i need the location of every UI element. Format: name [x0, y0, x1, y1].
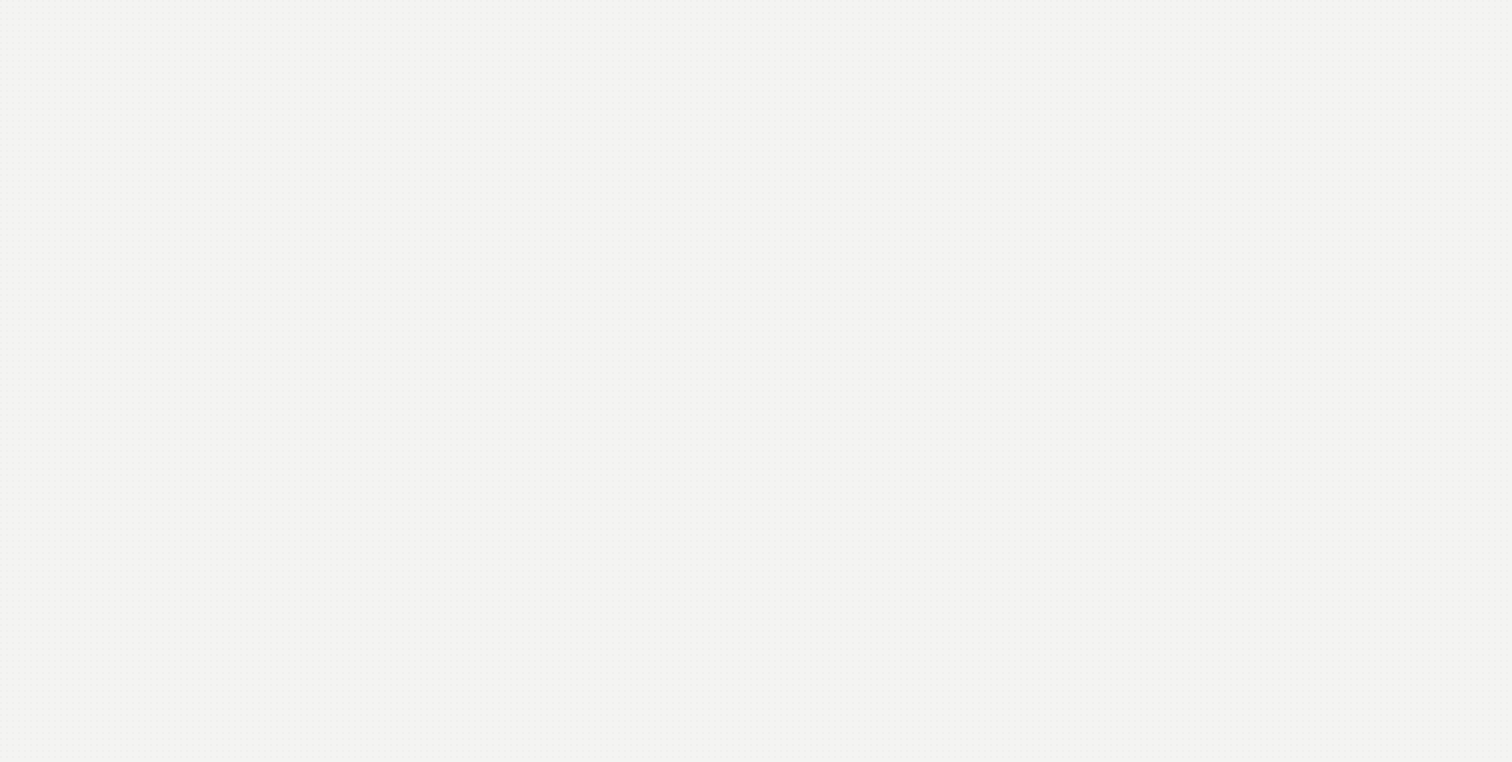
site-plan-illustration [0, 0, 1512, 762]
site-plan-canvas [0, 0, 1512, 762]
ground-layer [0, 0, 1512, 762]
halftone-texture [0, 0, 1512, 762]
